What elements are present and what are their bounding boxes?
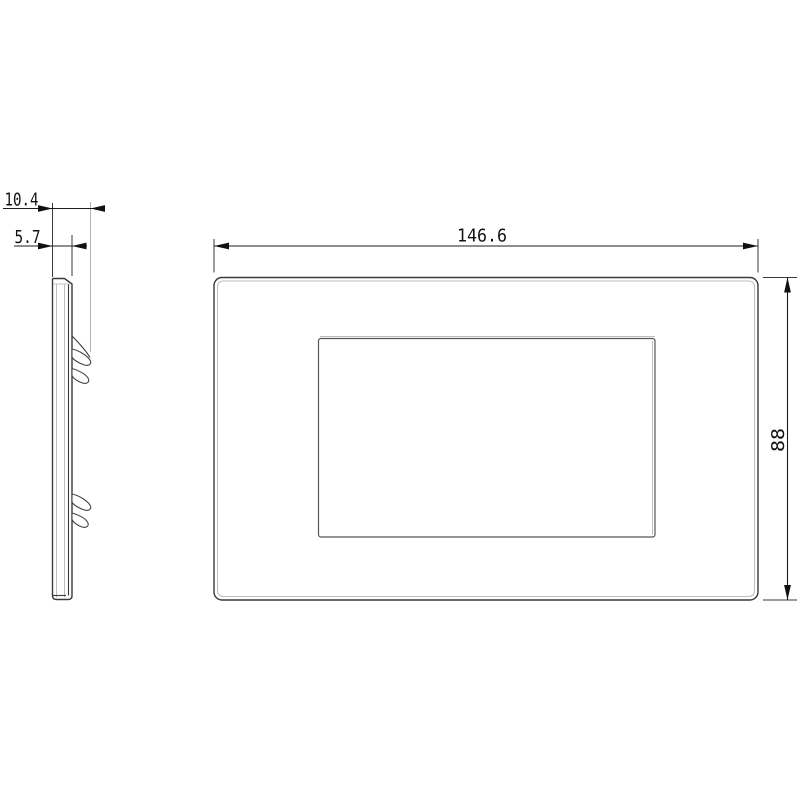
side-plate-outline [53, 279, 73, 600]
dim-text-plate-depth: 5.7 [15, 227, 41, 248]
dim-text-width: 146.6 [457, 226, 507, 247]
front-plate-outer-contour [214, 278, 758, 601]
front-view [214, 278, 758, 601]
dim-text-height: 88 [768, 428, 789, 452]
technical-drawing: 10.4 5.7 146.6 88 [0, 0, 800, 800]
dim-text-total-depth: 10.4 [5, 190, 39, 211]
drawing-canvas: 10.4 5.7 146.6 88 [0, 0, 800, 800]
